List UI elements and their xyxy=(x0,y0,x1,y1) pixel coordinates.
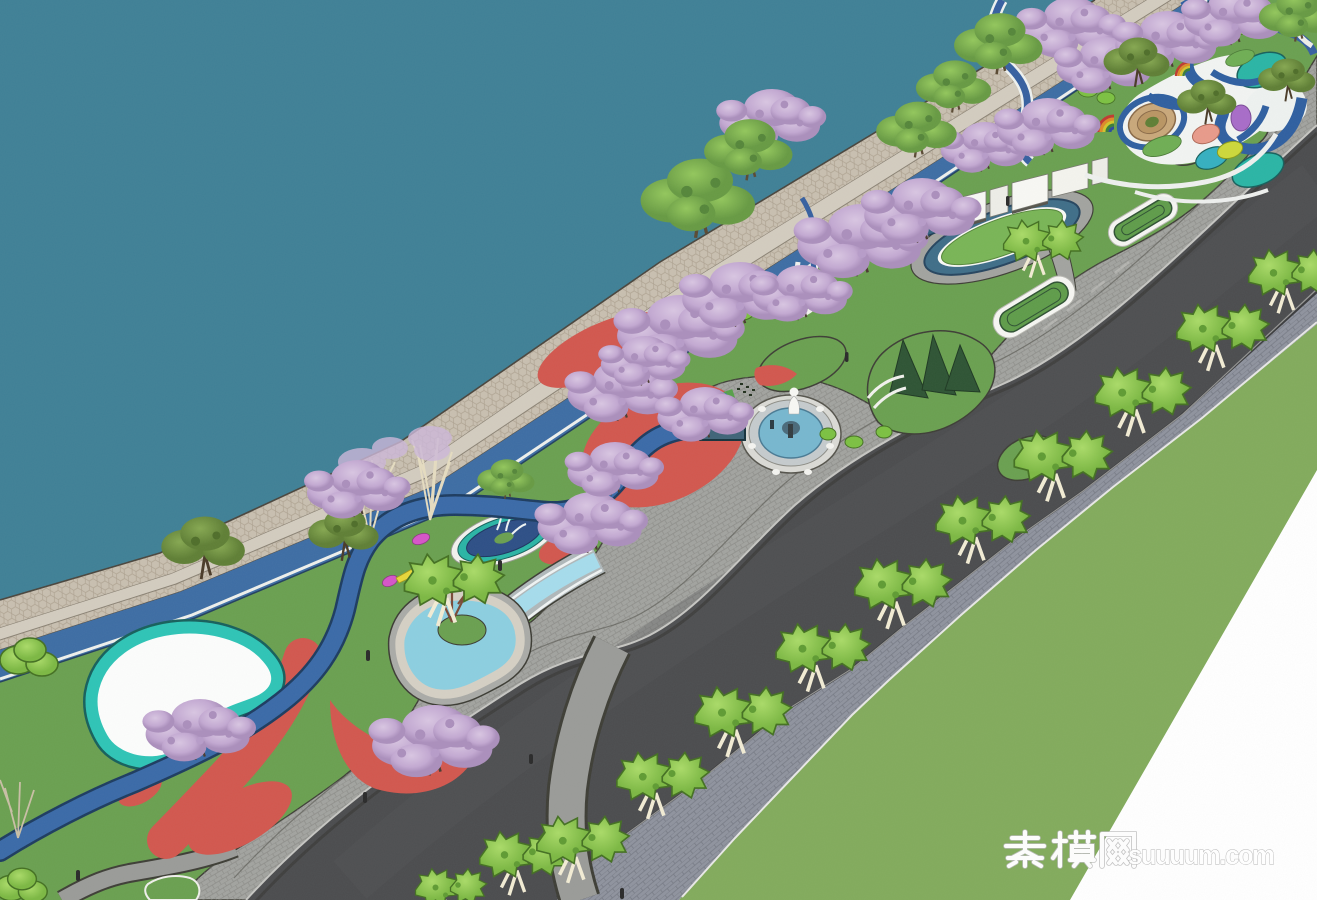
svg-text:suuuum.com: suuuum.com xyxy=(1128,842,1274,870)
